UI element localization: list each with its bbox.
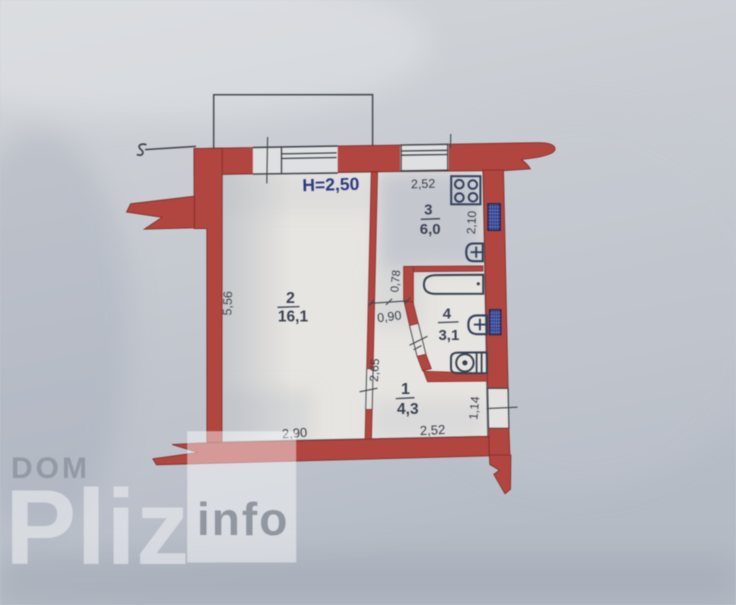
svg-text:2,10: 2,10 (464, 210, 479, 234)
svg-text:4: 4 (443, 306, 452, 323)
svg-text:1: 1 (401, 381, 410, 398)
svg-text:0,78: 0,78 (389, 270, 403, 293)
svg-text:6,0: 6,0 (420, 221, 441, 238)
svg-text:H=2,50: H=2,50 (302, 174, 360, 195)
svg-text:4,3: 4,3 (397, 401, 419, 418)
svg-text:3,1: 3,1 (438, 327, 459, 344)
svg-text:16,1: 16,1 (278, 309, 309, 326)
svg-text:Pliz: Pliz (5, 467, 189, 587)
svg-text:0,90: 0,90 (376, 308, 402, 325)
svg-text:2,65: 2,65 (367, 358, 382, 382)
svg-text:2,52: 2,52 (420, 422, 446, 438)
svg-text:info: info (197, 493, 289, 545)
svg-text:5,56: 5,56 (220, 291, 235, 316)
svg-text:2,52: 2,52 (411, 177, 436, 192)
svg-text:2: 2 (286, 290, 295, 307)
svg-text:1,14: 1,14 (466, 395, 482, 420)
svg-text:3: 3 (424, 202, 432, 219)
